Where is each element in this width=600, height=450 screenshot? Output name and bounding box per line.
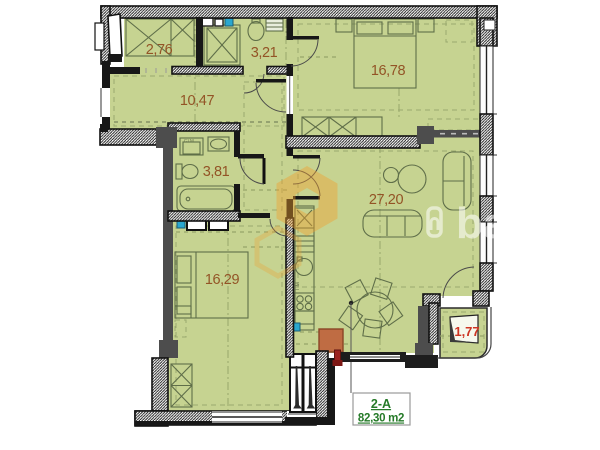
svg-text:16,78: 16,78 — [371, 63, 406, 79]
svg-text:ba: ba — [456, 199, 508, 248]
svg-text:10,47: 10,47 — [180, 93, 215, 109]
svg-text:ПМ: ПМ — [295, 282, 301, 290]
svg-text:2,76: 2,76 — [146, 42, 173, 58]
svg-text:16,29: 16,29 — [205, 272, 240, 288]
svg-text:3,21: 3,21 — [251, 45, 278, 61]
svg-text:Ст.М: Ст.М — [184, 138, 194, 143]
svg-text:82,30 m2: 82,30 m2 — [358, 413, 404, 425]
svg-text:27,20: 27,20 — [369, 192, 404, 208]
svg-text:1,77: 1,77 — [454, 324, 479, 339]
svg-text:3,81: 3,81 — [203, 164, 230, 180]
svg-text:2-A: 2-A — [371, 397, 391, 411]
